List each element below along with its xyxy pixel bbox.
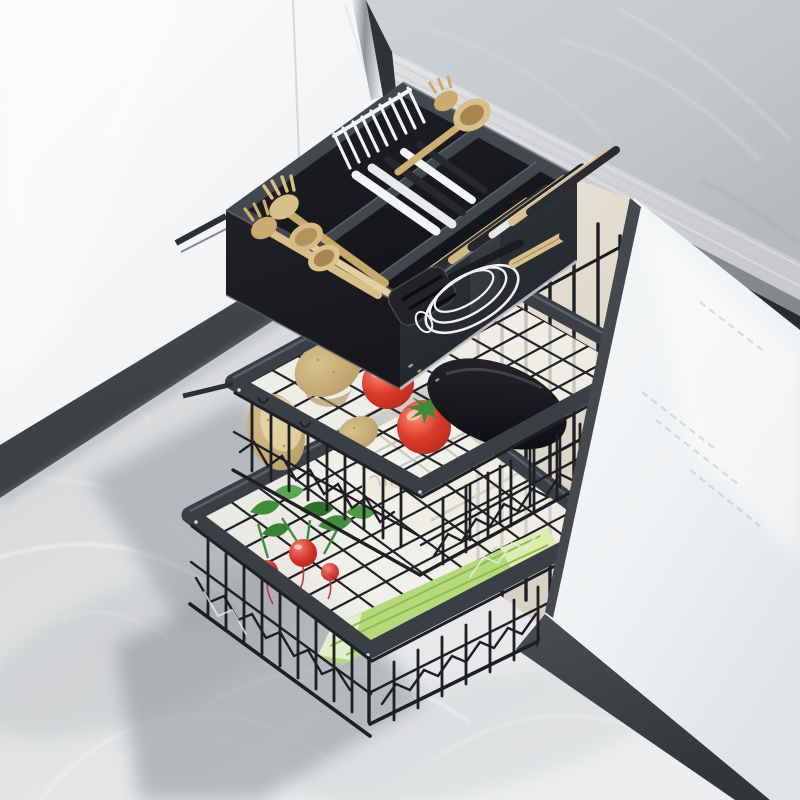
frame-screw (418, 490, 422, 494)
frame-screw (237, 388, 241, 392)
product-photo (0, 0, 800, 800)
screenshot-root (0, 0, 800, 800)
radish (289, 539, 317, 567)
radish (321, 563, 339, 581)
radish-highlight (294, 544, 302, 549)
whisk-handle-cap (559, 231, 569, 241)
frame-screw (194, 520, 198, 524)
